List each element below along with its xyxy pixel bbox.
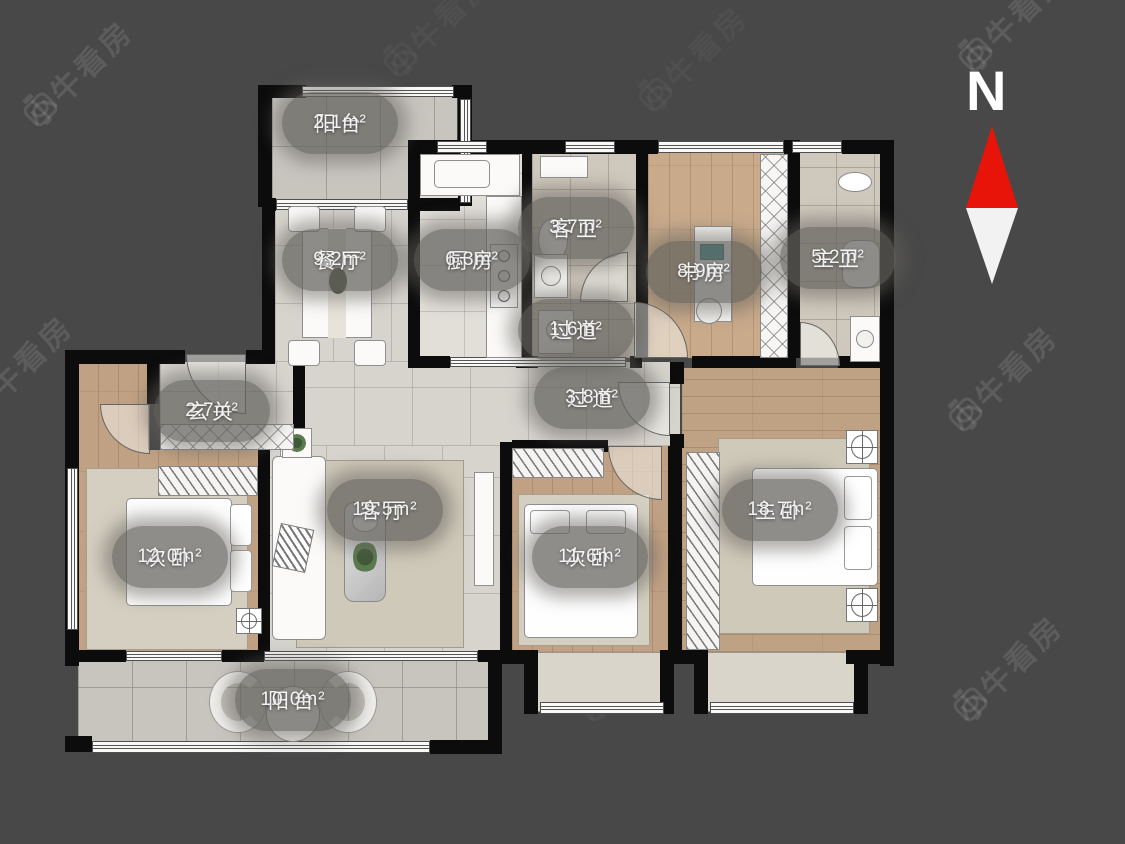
wardrobe (686, 452, 720, 650)
wall-segment (488, 650, 502, 754)
watermark-text: 小牛看房 (374, 0, 501, 86)
room-area: 11.6m² (558, 546, 622, 568)
room-area: 8.9m² (677, 261, 731, 283)
wardrobe (512, 448, 604, 478)
watermark-text: 小牛看房 (944, 603, 1071, 730)
north-label: N (966, 58, 1006, 123)
wardrobe (158, 466, 258, 496)
room-area: 3.8m² (565, 387, 619, 409)
wall-segment (408, 356, 450, 368)
room-area: 2.1m² (313, 112, 367, 134)
south-arrow-icon (966, 208, 1018, 284)
room-label-hallway: 过道3.8m² (534, 367, 650, 429)
room-label-master-bedroom: 主卧18.7m² (722, 479, 838, 541)
room-area: 10.0m² (260, 689, 325, 711)
window (792, 141, 842, 153)
burner (498, 290, 510, 302)
wall-segment (524, 650, 538, 714)
window (437, 141, 487, 153)
window (92, 741, 430, 753)
room-label-study: 书房8.9m² (646, 241, 762, 303)
basin (856, 330, 874, 348)
dining-chair (354, 340, 386, 366)
wall-segment (500, 442, 512, 654)
wall-segment (880, 140, 894, 666)
wall-segment (262, 200, 275, 364)
room-label-kitchen: 厨房6.3m² (414, 229, 530, 291)
wall-segment (246, 350, 275, 364)
room-area: 6.3m² (445, 249, 499, 271)
table-plant (353, 540, 377, 574)
room-area: 19.5m² (352, 499, 417, 521)
room-label-balcony-bottom: 阳台10.0m² (235, 669, 351, 731)
nightstand (846, 588, 878, 622)
wall-segment (668, 446, 682, 652)
room-area: 18.7m² (747, 499, 812, 521)
wall-segment (846, 650, 894, 664)
wall-segment (65, 350, 185, 364)
balcony-sliding-door (264, 651, 478, 661)
room-label-hallway-small: 过道1.6m² (518, 299, 634, 361)
room-label-bedroom-mid: 次卧11.6m² (532, 526, 648, 588)
room-label-balcony-top: 阳台2.1m² (282, 92, 398, 154)
wall-segment (670, 362, 684, 384)
pillow (230, 504, 252, 546)
room-area: 1.6m² (549, 319, 603, 341)
north-arrow-icon (966, 126, 1018, 208)
toilet (838, 172, 872, 192)
room-label-master-bath: 主卫5.2m² (780, 227, 896, 289)
wall-segment (222, 650, 264, 662)
room-label-bedroom-left: 次卧12.0m² (112, 526, 228, 588)
pillow (844, 526, 872, 570)
room-area: 2.7m² (185, 400, 239, 422)
window (126, 651, 222, 661)
window (710, 702, 854, 714)
room-label-living: 客厅19.5m² (327, 479, 443, 541)
bath-fixture (540, 156, 588, 178)
nightstand (846, 430, 878, 464)
room-label-dining: 餐厅9.2m² (282, 229, 398, 291)
tv-console (474, 472, 494, 586)
window (540, 702, 664, 714)
pillow (844, 476, 872, 520)
room-area: 5.2m² (811, 247, 865, 269)
room-area: 3.7m² (549, 217, 603, 239)
window (565, 141, 615, 153)
kitchen-sink (434, 160, 490, 188)
watermark-text: 小牛看房 (629, 0, 756, 121)
watermark-text: 小牛看房 (14, 8, 141, 135)
room-area: 12.0m² (137, 546, 202, 568)
room-area: 9.2m² (313, 249, 367, 271)
wall-segment (65, 736, 92, 752)
window (67, 468, 78, 630)
window (658, 141, 784, 153)
room-label-entry: 玄关2.7m² (154, 380, 270, 442)
wall-segment (694, 650, 708, 714)
wall-segment (258, 85, 272, 207)
watermark-text: 小牛看房 (939, 313, 1066, 440)
column-marker (236, 608, 262, 634)
pillow (230, 550, 252, 592)
wall-segment (78, 650, 126, 662)
basin (541, 266, 561, 286)
dining-chair (288, 340, 320, 366)
room-label-guest-bath: 客卫3.7m² (518, 197, 634, 259)
floorplan-canvas: 小牛看房 小牛看房 小牛看房 小牛看房 小牛看房 小牛看房 小牛看房 小牛看房 (0, 0, 1125, 844)
